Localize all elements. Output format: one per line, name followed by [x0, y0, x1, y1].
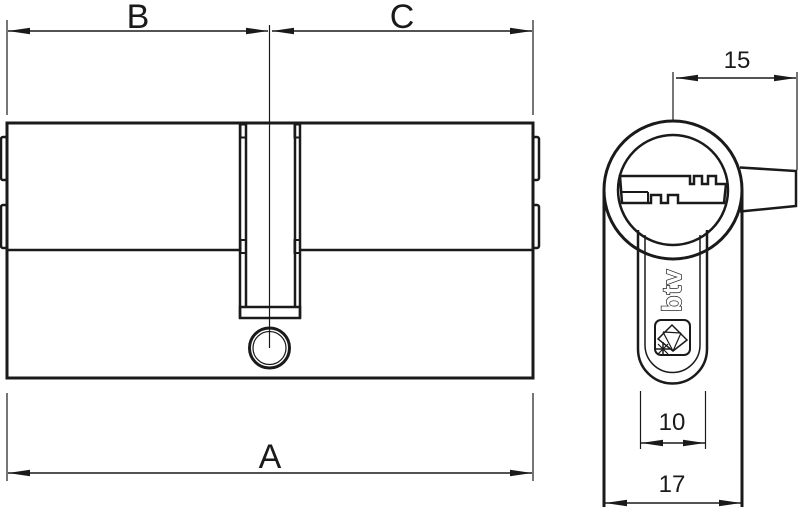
dimension-label-c: C	[390, 0, 415, 36]
dimension-c: C	[272, 0, 533, 115]
dimension-label-17: 17	[659, 471, 686, 498]
dimension-17: 17	[605, 471, 741, 506]
dimension-10: 10	[641, 391, 706, 449]
arrowhead-left	[8, 28, 30, 35]
arrowhead-right	[246, 28, 268, 35]
arrowhead-left	[8, 470, 30, 477]
dimension-15: 15	[676, 47, 797, 170]
arrowhead-right	[774, 75, 796, 82]
dimension-label-a: A	[259, 438, 282, 476]
dimension-label-10: 10	[659, 409, 686, 436]
dimension-label-b: B	[127, 0, 150, 36]
cam-nose	[740, 168, 796, 212]
cylinder-side-view	[1, 25, 539, 378]
dimension-label-15: 15	[724, 47, 751, 74]
sparkle-icon	[656, 342, 670, 356]
arrowhead-right	[510, 28, 532, 35]
btv-logo: btv	[655, 269, 690, 357]
cylinder-end-view: btv	[604, 72, 796, 507]
key-silhouette	[620, 176, 726, 203]
arrowhead-left	[605, 500, 627, 507]
clip-notch	[295, 125, 301, 138]
arrowhead-right	[510, 470, 532, 477]
dimension-a: A	[7, 393, 533, 481]
clip-notch	[295, 240, 301, 253]
keyway-profile	[620, 176, 726, 203]
dimension-b: B	[7, 0, 268, 115]
clip-notch	[241, 240, 247, 253]
arrowhead-right	[719, 500, 741, 507]
arrowhead-left	[272, 28, 294, 35]
arrowhead-right	[683, 440, 705, 447]
diamond-emblem	[655, 320, 690, 356]
arrowhead-left	[641, 440, 663, 447]
btv-logo-text: btv	[657, 269, 687, 313]
cylinder-technical-drawing: B C A btv	[0, 0, 800, 507]
barrel-outer-circle	[604, 121, 742, 259]
barrel-inner-circle	[618, 135, 728, 245]
arrowhead-left	[676, 75, 698, 82]
drawing-svg: B C A btv	[0, 0, 800, 507]
clip-notch	[241, 125, 247, 138]
